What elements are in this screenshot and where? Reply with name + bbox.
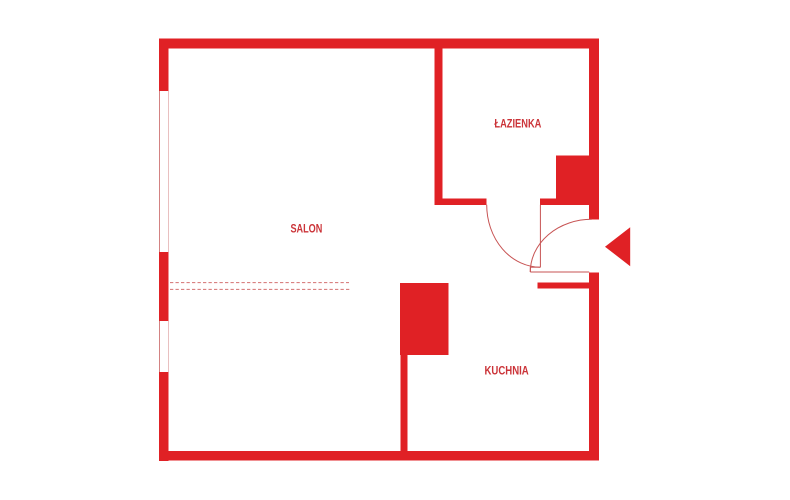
svg-text:ŁAZIENKA: ŁAZIENKA bbox=[494, 119, 541, 131]
svg-text:SALON: SALON bbox=[290, 224, 322, 236]
svg-text:KUCHNIA: KUCHNIA bbox=[485, 365, 529, 377]
